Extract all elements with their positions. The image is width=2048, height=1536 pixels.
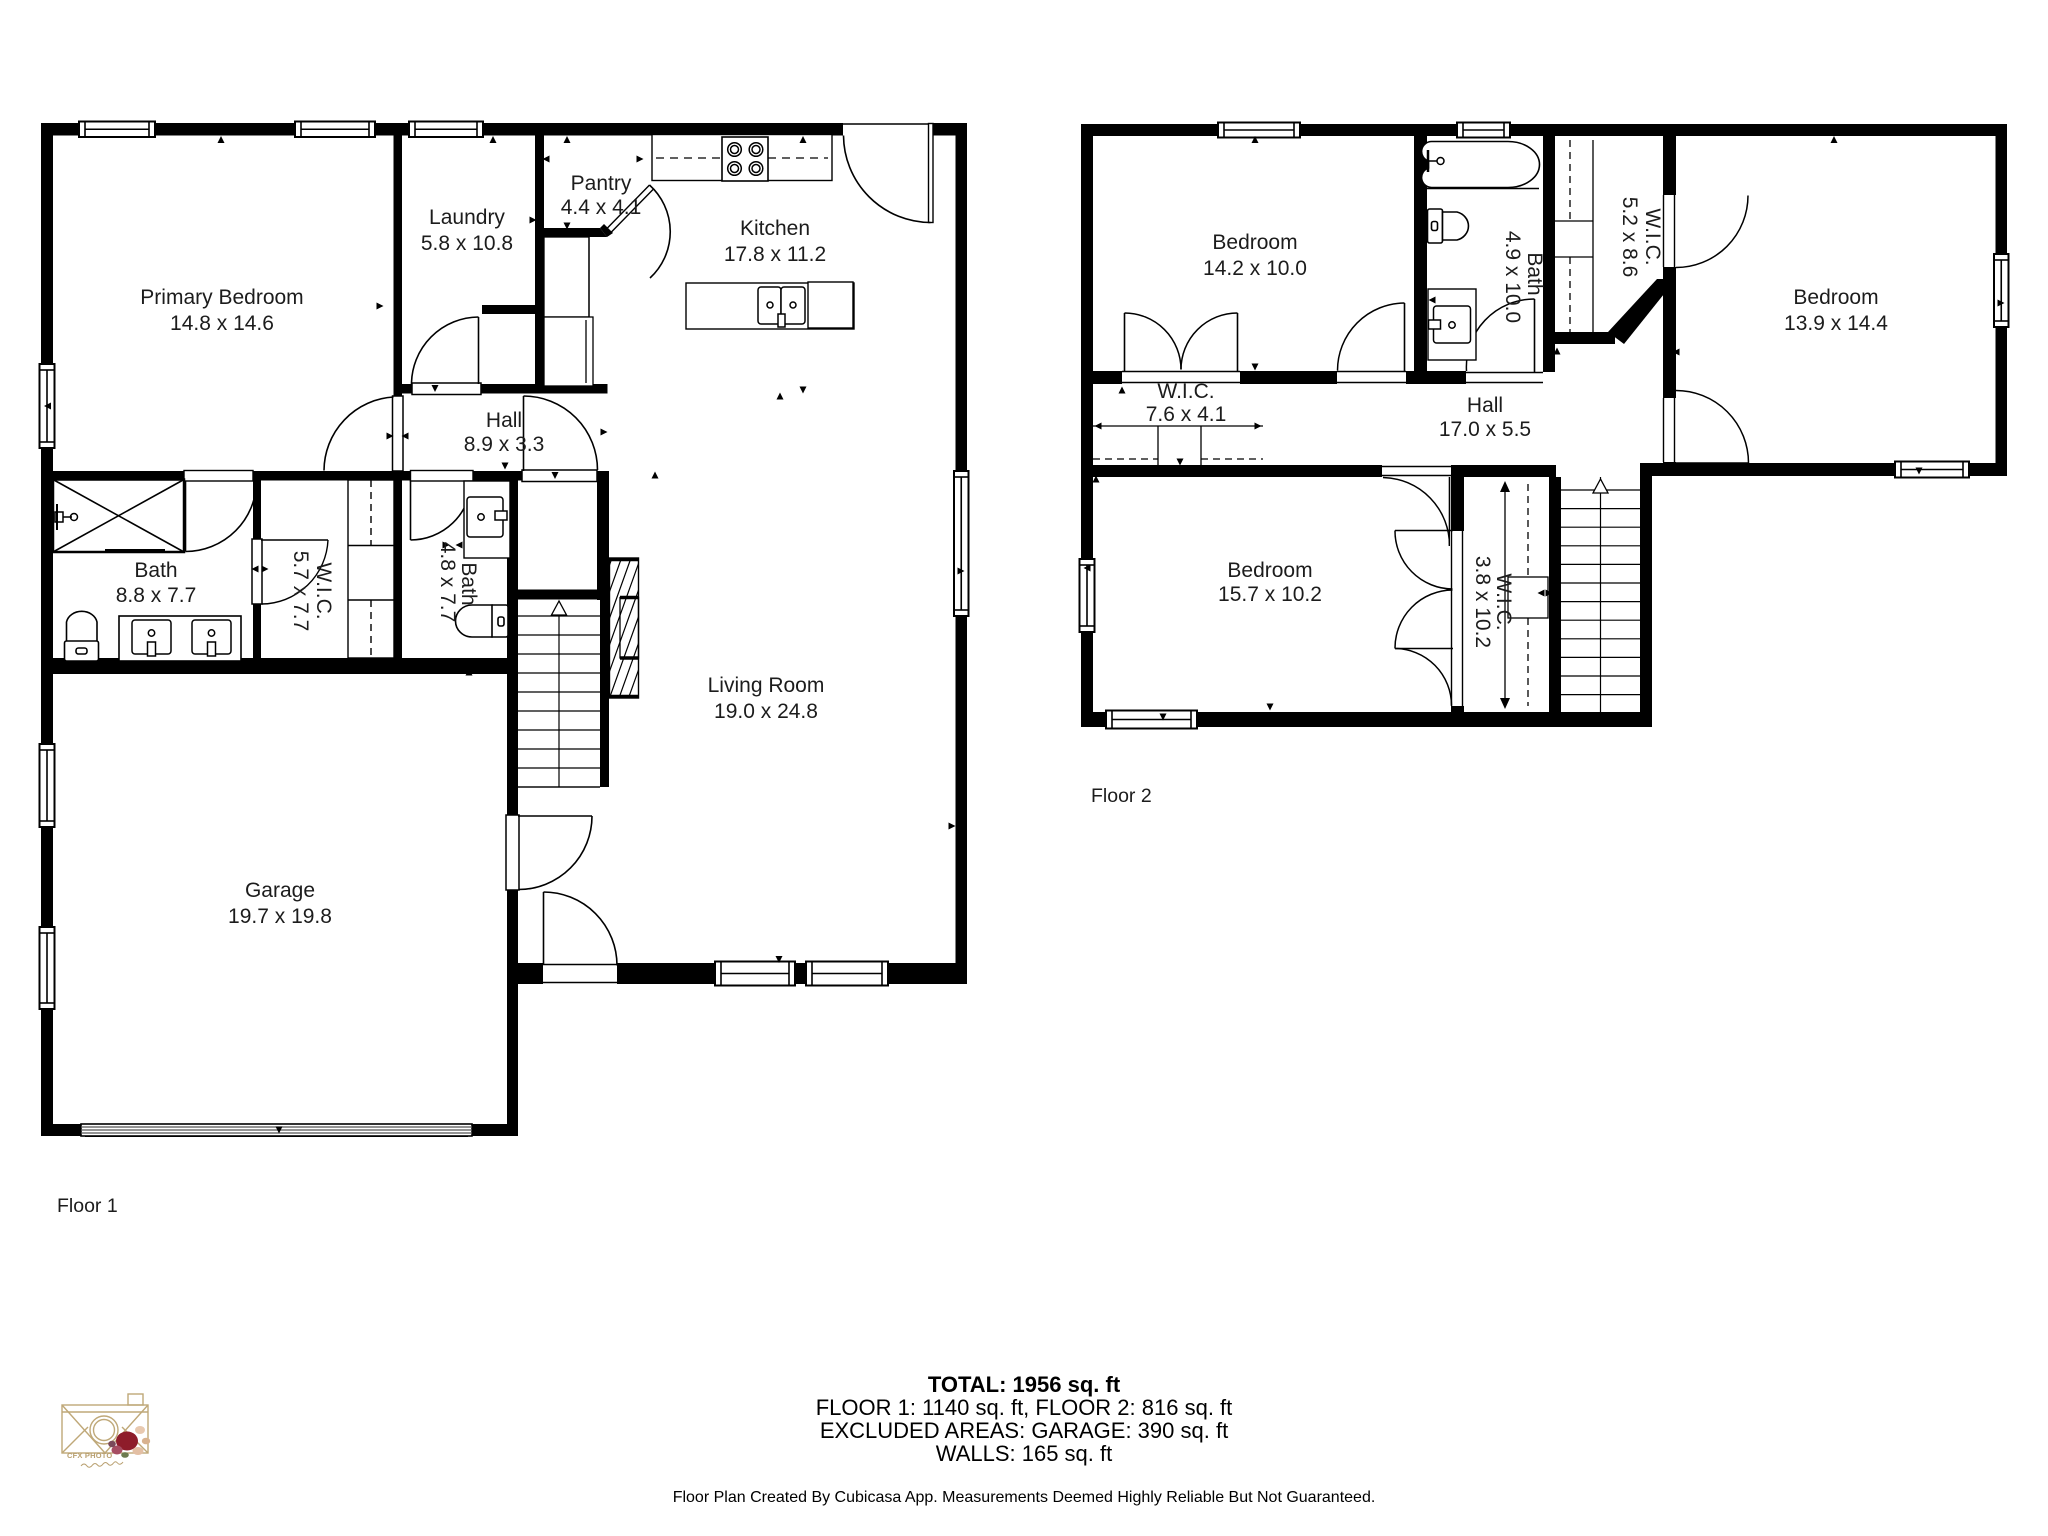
svg-text:17.8 x 11.2: 17.8 x 11.2: [724, 243, 826, 266]
svg-text:Floor Plan Created By Cubicasa: Floor Plan Created By Cubicasa App. Meas…: [673, 1489, 1376, 1506]
svg-text:Hall: Hall: [486, 409, 522, 432]
svg-text:4.9 x 10.0: 4.9 x 10.0: [1501, 231, 1524, 323]
svg-text:CFX PHOTO: CFX PHOTO: [67, 1451, 112, 1460]
svg-text:Floor 2: Floor 2: [1091, 785, 1152, 807]
svg-text:Bath: Bath: [1523, 252, 1546, 295]
svg-text:Floor 1: Floor 1: [57, 1195, 118, 1217]
svg-text:Laundry: Laundry: [429, 206, 505, 229]
svg-text:Primary Bedroom: Primary Bedroom: [140, 286, 303, 309]
svg-text:Living Room: Living Room: [708, 674, 825, 697]
svg-text:TOTAL: 1956 sq. ft: TOTAL: 1956 sq. ft: [928, 1372, 1121, 1397]
svg-text:Bedroom: Bedroom: [1793, 286, 1878, 309]
svg-text:4.4 x 4.1: 4.4 x 4.1: [561, 196, 642, 219]
svg-text:Hall: Hall: [1467, 394, 1503, 417]
svg-text:Bath: Bath: [134, 559, 177, 582]
svg-text:Garage: Garage: [245, 879, 315, 902]
svg-text:WALLS: 165 sq. ft: WALLS: 165 sq. ft: [936, 1441, 1113, 1466]
svg-text:EXCLUDED AREAS: GARAGE: 390 sq: EXCLUDED AREAS: GARAGE: 390 sq. ft: [820, 1418, 1228, 1443]
svg-text:5.7 x 7.7: 5.7 x 7.7: [289, 551, 312, 632]
svg-text:W.I.C.: W.I.C.: [1157, 380, 1214, 403]
svg-text:14.2 x 10.0: 14.2 x 10.0: [1203, 257, 1307, 280]
svg-text:19.7 x 19.8: 19.7 x 19.8: [228, 905, 332, 928]
svg-text:14.8 x 14.6: 14.8 x 14.6: [170, 312, 274, 335]
svg-text:8.8 x 7.7: 8.8 x 7.7: [116, 584, 197, 607]
svg-text:19.0 x 24.8: 19.0 x 24.8: [714, 700, 818, 723]
svg-text:W.I.C.: W.I.C.: [1641, 208, 1664, 265]
svg-text:5.2 x 8.6: 5.2 x 8.6: [1618, 197, 1641, 278]
svg-text:Pantry: Pantry: [571, 172, 632, 195]
svg-text:8.9 x 3.3: 8.9 x 3.3: [464, 433, 545, 456]
svg-text:3.8 x 10.2: 3.8 x 10.2: [1471, 556, 1494, 648]
svg-text:7.6 x 4.1: 7.6 x 4.1: [1146, 403, 1227, 426]
svg-text:15.7 x 10.2: 15.7 x 10.2: [1218, 583, 1322, 606]
svg-text:W.I.C.: W.I.C.: [312, 562, 335, 619]
svg-text:13.9 x 14.4: 13.9 x 14.4: [1784, 312, 1888, 335]
svg-text:Bedroom: Bedroom: [1212, 231, 1297, 254]
svg-text:FLOOR 1: 1140 sq. ft, FLOOR 2:: FLOOR 1: 1140 sq. ft, FLOOR 2: 816 sq. f…: [816, 1395, 1233, 1420]
svg-text:5.8 x 10.8: 5.8 x 10.8: [421, 232, 513, 255]
svg-text:Bath: Bath: [457, 562, 480, 605]
svg-text:W.I.C.: W.I.C.: [1492, 573, 1515, 630]
svg-text:Bedroom: Bedroom: [1227, 559, 1312, 582]
svg-text:17.0 x 5.5: 17.0 x 5.5: [1439, 418, 1531, 441]
svg-text:4.8 x 7.7: 4.8 x 7.7: [436, 542, 459, 623]
svg-text:Kitchen: Kitchen: [740, 217, 810, 240]
